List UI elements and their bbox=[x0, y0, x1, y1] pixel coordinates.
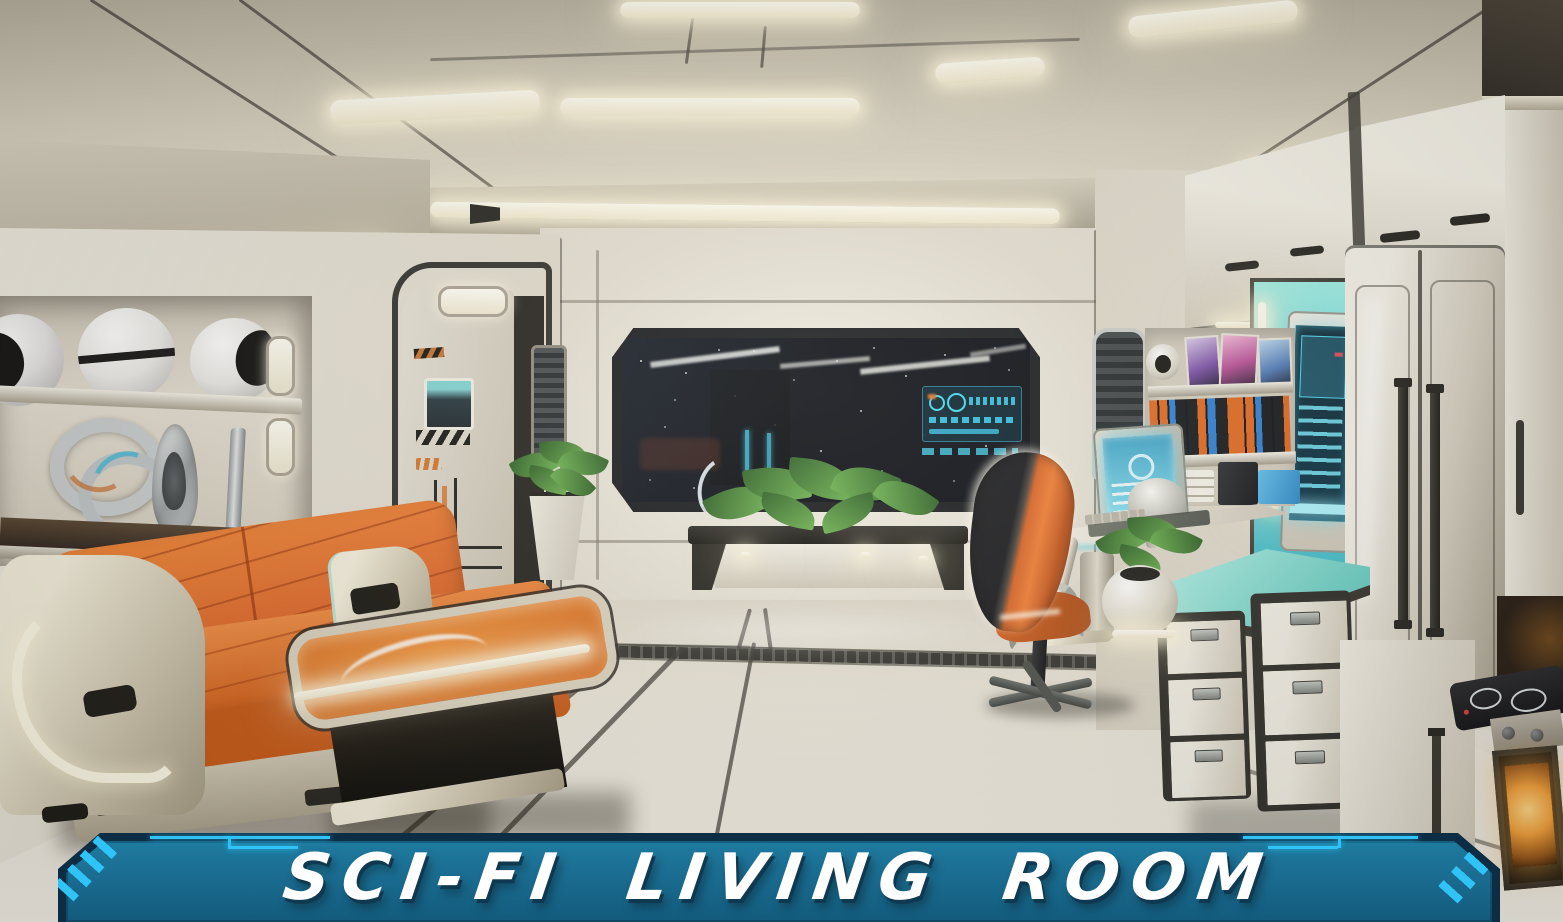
drawer-handle bbox=[1295, 750, 1325, 764]
door-window bbox=[424, 378, 474, 430]
drawer bbox=[1165, 675, 1247, 740]
handle-mount bbox=[1394, 378, 1412, 387]
planter-underglow bbox=[1112, 630, 1176, 638]
oven-knob bbox=[1501, 726, 1516, 741]
hazard-stripes bbox=[416, 430, 470, 445]
door-light bbox=[438, 286, 508, 317]
picture-frame bbox=[1184, 335, 1222, 389]
screen-alert-dot bbox=[1335, 352, 1343, 356]
picture-frame bbox=[1219, 333, 1260, 389]
chevron-decal bbox=[416, 458, 442, 470]
bench-light-dot bbox=[918, 556, 928, 562]
banner: SCI-FI LIVING ROOM bbox=[58, 833, 1500, 922]
oven-door bbox=[1492, 745, 1563, 890]
tall-cabinet-right bbox=[1505, 110, 1563, 610]
drawer-handle bbox=[1292, 680, 1322, 694]
sphere-stripe bbox=[78, 348, 175, 364]
screen-glow-bar bbox=[1289, 503, 1345, 515]
helmet bbox=[1146, 344, 1180, 380]
fridge-handle bbox=[1430, 388, 1440, 636]
drawer-cabinet bbox=[1157, 611, 1252, 802]
burner bbox=[1468, 686, 1503, 712]
teardrop-hole bbox=[162, 452, 186, 510]
oven-knob bbox=[1530, 728, 1545, 743]
drawer-handle bbox=[1190, 628, 1218, 641]
wall-light bbox=[266, 418, 295, 476]
decor-sphere bbox=[190, 318, 278, 402]
bench-light-dot bbox=[860, 552, 870, 558]
drawer-handle bbox=[1290, 611, 1320, 625]
sphere-planter bbox=[1102, 565, 1178, 637]
ceiling-light-strip bbox=[560, 98, 860, 116]
screen-rows bbox=[1296, 405, 1343, 496]
drawer bbox=[1257, 597, 1351, 668]
holo-ring bbox=[1127, 453, 1155, 481]
wall-light bbox=[266, 336, 295, 396]
hazard-stripes bbox=[414, 347, 445, 359]
armrest-pad bbox=[350, 582, 401, 615]
corner-cabinet-dark bbox=[1482, 0, 1563, 98]
wall-seam bbox=[556, 300, 1096, 303]
bench-body bbox=[700, 544, 958, 588]
drawer bbox=[1167, 737, 1249, 802]
fridge-handle bbox=[1398, 382, 1408, 627]
cabinet-handle-vertical bbox=[1432, 732, 1441, 850]
burner bbox=[1509, 686, 1548, 715]
cabinet-handle-vertical bbox=[1516, 420, 1524, 515]
scene-canvas: SCI-FI LIVING ROOM bbox=[0, 0, 1563, 922]
screen-block bbox=[1299, 335, 1347, 399]
decor-sphere bbox=[78, 308, 175, 400]
banner-title: SCI-FI LIVING ROOM bbox=[280, 846, 1278, 910]
banner-title-wrap: SCI-FI LIVING ROOM bbox=[58, 833, 1500, 922]
wall-seam bbox=[596, 250, 599, 580]
storage-box-black bbox=[1218, 462, 1258, 505]
planter-opening bbox=[1120, 567, 1160, 581]
sofa-arm-left bbox=[0, 555, 205, 815]
drawer bbox=[1163, 617, 1245, 678]
ceiling-light-strip bbox=[620, 2, 860, 18]
handle-mount bbox=[1426, 628, 1444, 637]
burner-indicator bbox=[1463, 709, 1469, 715]
helmet-visor bbox=[1155, 355, 1171, 373]
storage-box-blue bbox=[1258, 470, 1300, 504]
handle-mount bbox=[1426, 384, 1444, 393]
handle-mount bbox=[1394, 620, 1412, 629]
bench-light-dot bbox=[740, 552, 750, 558]
handle-mount bbox=[1428, 728, 1445, 736]
oven-window bbox=[1504, 762, 1557, 867]
drawer-handle bbox=[1192, 687, 1220, 700]
floor-reflection bbox=[600, 605, 1020, 655]
fridge-seam bbox=[1418, 250, 1422, 705]
drawer-handle bbox=[1195, 749, 1223, 762]
